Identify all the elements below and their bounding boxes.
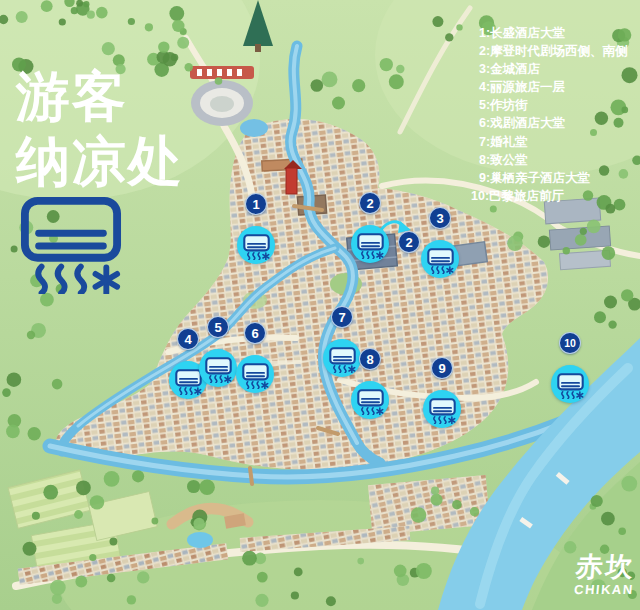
ac-icon	[175, 369, 202, 395]
legend-item-3: 3:金城酒店	[479, 60, 628, 78]
legend-item-10: 10:巴黎旅店前厅	[471, 187, 628, 205]
map-marker-5: 5	[199, 349, 237, 387]
legend-item-9: 9:巢栖亲子酒店大堂	[479, 169, 628, 187]
legend-item-2: 2:摩登时代剧场西侧、南侧	[479, 42, 628, 60]
map-marker-3: 3	[421, 240, 459, 278]
ac-icon	[557, 373, 584, 399]
map-marker-7: 7	[323, 339, 361, 377]
marker-number-badge: 5	[207, 316, 229, 338]
watermark-en: CHIKAN	[573, 583, 634, 596]
map-marker-10: 10	[551, 365, 589, 403]
marker-number-badge: 4	[177, 328, 199, 350]
air-conditioner-icon	[20, 194, 122, 296]
marker-number-badge: 6	[244, 322, 266, 344]
ac-icon	[242, 363, 269, 389]
page-title: 游客纳凉处	[16, 64, 184, 194]
ac-icon	[243, 234, 270, 260]
marker-number-badge: 9	[431, 357, 453, 379]
legend-list: 1:长盛酒店大堂 2:摩登时代剧场西侧、南侧 3:金城酒店 4:丽源旅店一层 5…	[479, 24, 628, 205]
ac-icon	[427, 248, 454, 274]
marker-number-badge: 2	[359, 192, 381, 214]
legend-item-8: 8:致公堂	[479, 151, 628, 169]
cooling-spots-map-poster: 游客纳凉处 1:长盛酒店大堂 2:摩登时代剧场西侧、南侧 3:金城酒店 4:丽源…	[0, 0, 640, 610]
ac-icon	[357, 233, 384, 259]
map-marker-1: 1	[237, 226, 275, 264]
legend-item-1: 1:长盛酒店大堂	[479, 24, 628, 42]
legend-item-5: 5:作坊街	[479, 96, 628, 114]
marker-number-badge: 1	[245, 193, 267, 215]
watermark-cn: 赤坎	[574, 554, 636, 581]
legend-item-6: 6:戏剧酒店大堂	[479, 114, 628, 132]
marker-number-badge: 7	[331, 306, 353, 328]
map-marker-2-west: 2	[351, 225, 389, 263]
ac-icon	[205, 357, 232, 383]
watermark: 赤坎 CHIKAN	[573, 554, 637, 596]
marker-number-badge: 8	[359, 348, 381, 370]
map-marker-8: 8	[351, 381, 389, 419]
ac-icon	[357, 389, 384, 415]
map-marker-9: 9	[423, 390, 461, 428]
page-title-line2: 纳凉处	[16, 131, 184, 191]
legend-item-4: 4:丽源旅店一层	[479, 78, 628, 96]
map-marker-6: 6	[236, 355, 274, 393]
marker-number-badge: 10	[559, 332, 581, 354]
legend-item-7: 7:婚礼堂	[479, 133, 628, 151]
ac-icon	[329, 347, 356, 373]
page-title-line1: 游客	[16, 66, 128, 126]
map-marker-2-south-badge: 2	[398, 231, 420, 253]
ac-icon	[429, 398, 456, 424]
stadium	[190, 66, 254, 126]
marker-number-badge: 3	[429, 207, 451, 229]
